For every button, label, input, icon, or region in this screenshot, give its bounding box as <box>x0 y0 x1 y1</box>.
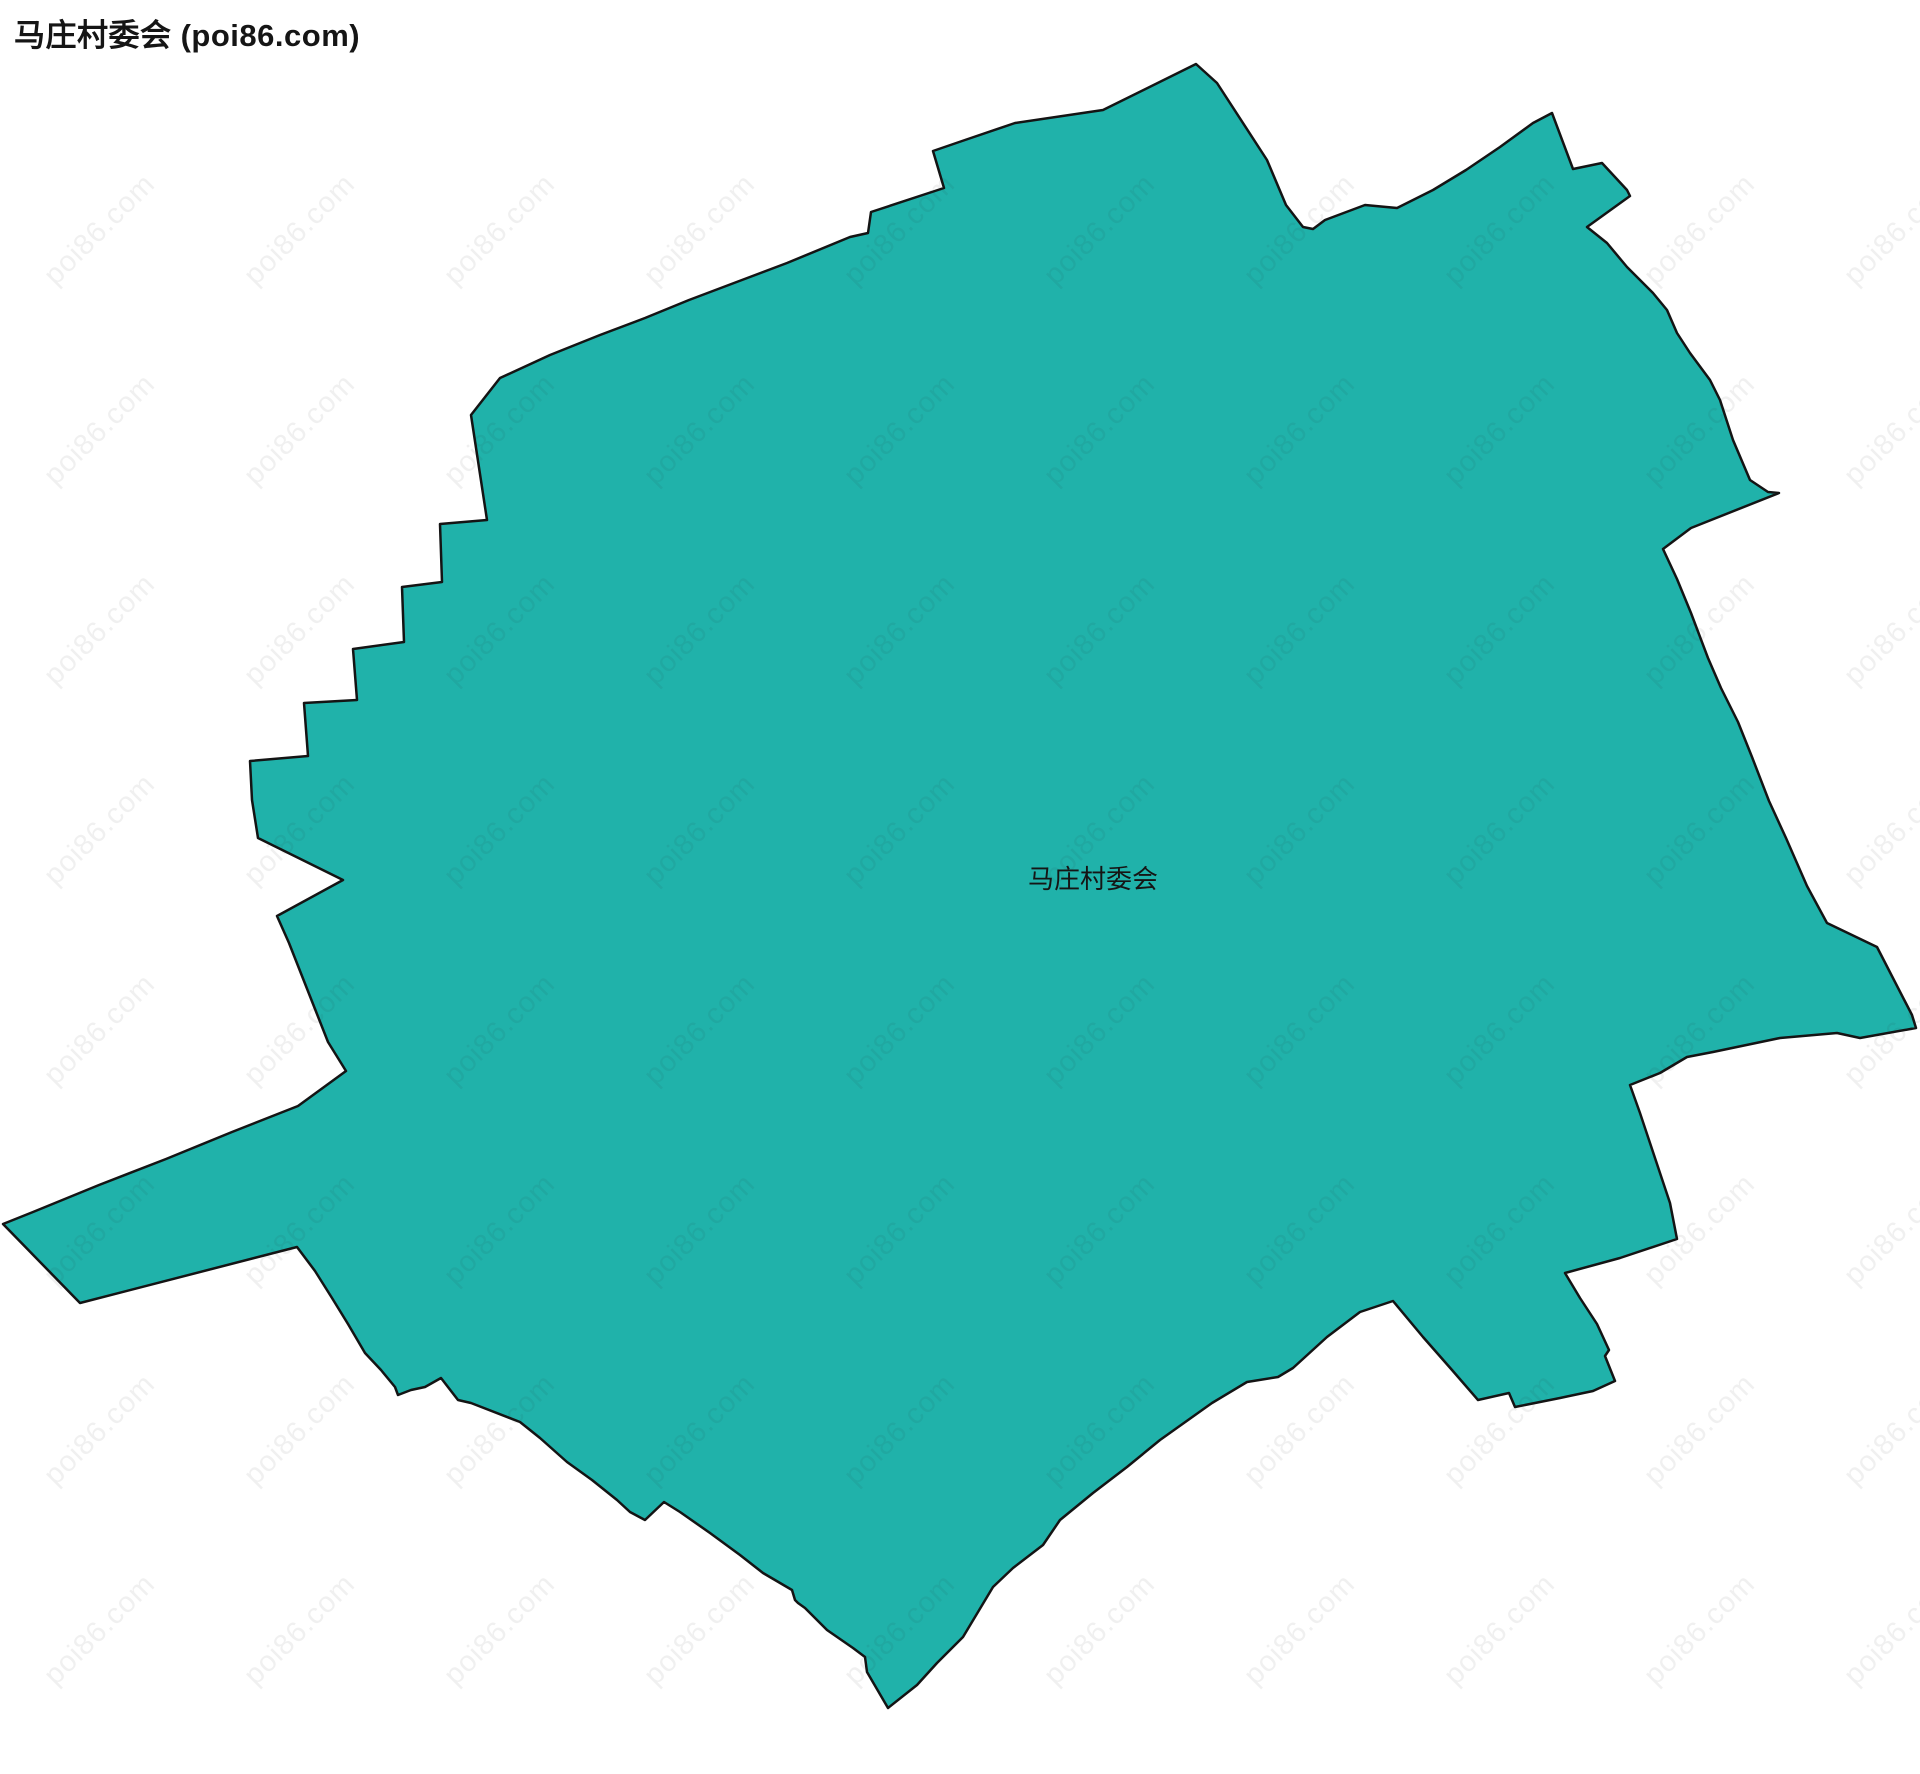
page-title: 马庄村委会 (poi86.com) <box>14 10 360 55</box>
map-page: 马庄村委会 poi86.compoi86.compoi86.compoi86.c… <box>0 0 1920 1774</box>
region-label: 马庄村委会 <box>1028 864 1158 894</box>
village-boundary-polygon <box>3 64 1916 1708</box>
map-canvas: 马庄村委会 <box>0 0 1920 1774</box>
